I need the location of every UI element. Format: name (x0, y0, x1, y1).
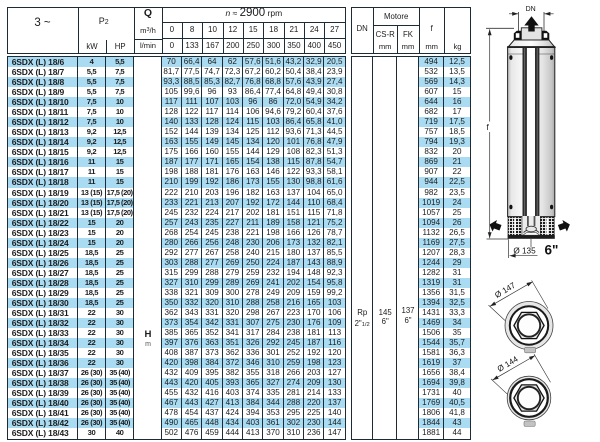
svg-text:DN: DN (526, 6, 536, 13)
svg-text:Ø 135: Ø 135 (513, 246, 536, 255)
svg-text:6": 6" (545, 243, 559, 258)
